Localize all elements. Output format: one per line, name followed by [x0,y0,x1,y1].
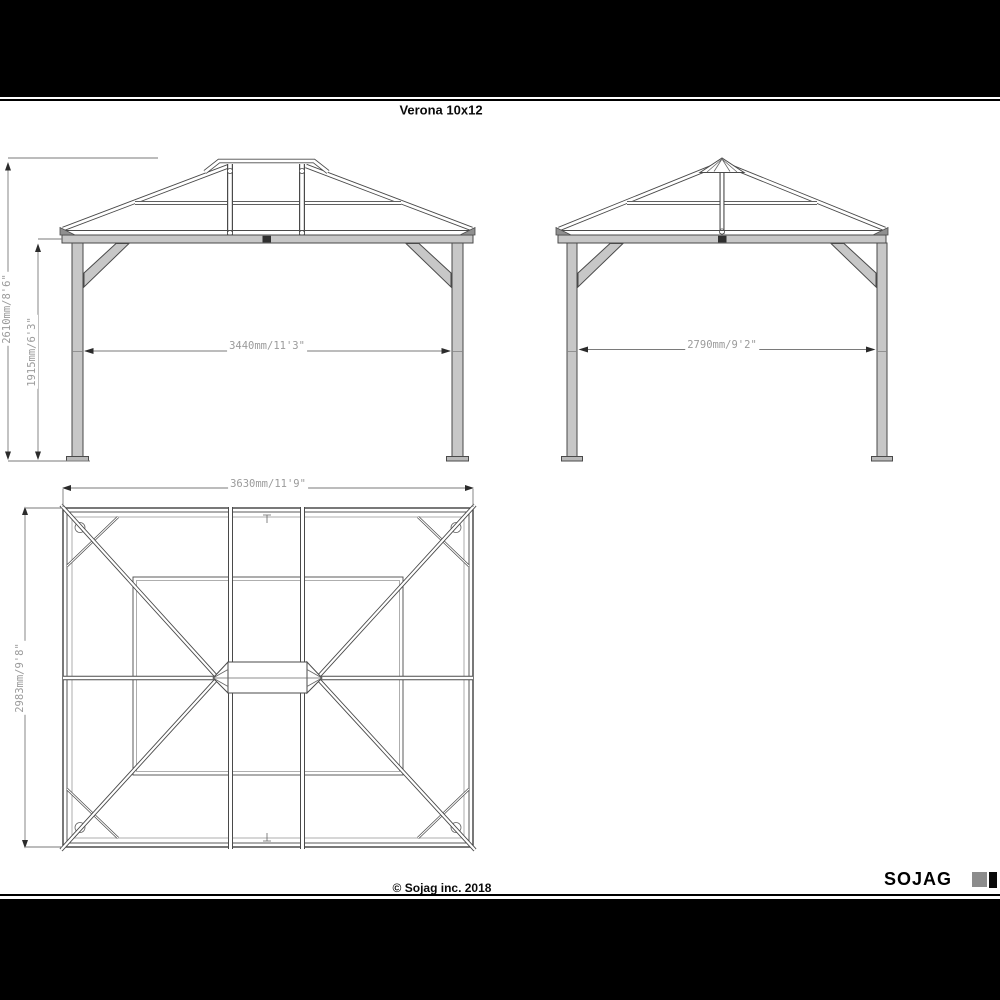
front-elevation-view [60,161,475,461]
dim-roof-width-label: 3630mm/11'9" [228,478,308,490]
gazebo-technical-drawing [0,0,1000,1000]
dimension-annotations [5,158,876,849]
sojag-logo: SOJAG [884,871,952,888]
drawing-page: Verona 10x12 [0,0,1000,1000]
bottom-border-rule [0,894,1000,896]
brand-gray-square-icon [972,872,987,887]
brand-black-mark-icon [989,872,997,888]
plan-view [61,505,475,850]
bottom-letterbox-bar [0,899,1000,1000]
dim-front-clear-width-label: 3440mm/11'3" [227,340,307,352]
dim-side-clear-depth-label: 2790mm/9'2" [685,339,759,351]
dim-roof-depth-label: 2983mm/9'8" [14,641,26,715]
dim-front-total-height-label: 2610mm/8'6" [1,272,13,346]
dim-front-post-height-label: 1915mm/6'3" [26,315,38,389]
side-elevation-view [556,158,893,461]
